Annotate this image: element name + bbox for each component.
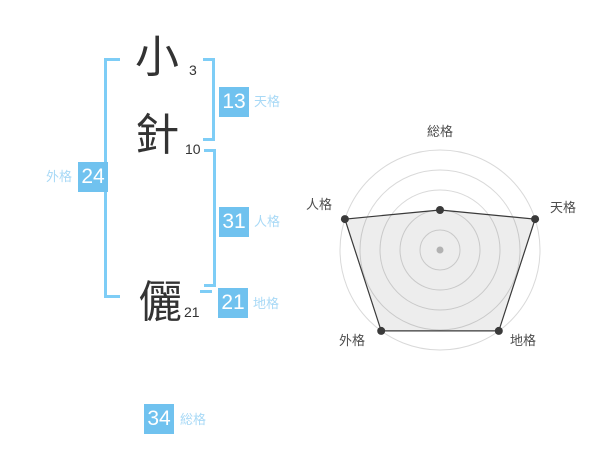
- stroke-count-3: 21: [184, 305, 200, 319]
- soukaku-value-box: 34: [144, 404, 174, 434]
- stroke-count-1: 3: [189, 63, 197, 77]
- radar-chart: 総格天格地格外格人格: [300, 115, 590, 365]
- gaikaku-label: 外格: [30, 170, 72, 183]
- radar-point-4: [377, 327, 385, 335]
- radar-axis-label-5: 人格: [306, 197, 332, 212]
- name-character-2: 針: [134, 114, 180, 158]
- radar-point-3: [495, 327, 503, 335]
- chikaku-label: 地格: [253, 297, 279, 310]
- tenkaku-value-box: 13: [219, 87, 249, 117]
- radar-axis-label-4: 外格: [339, 333, 365, 348]
- gaikaku-value-box: 24: [78, 162, 108, 192]
- name-character-1: 小: [134, 36, 180, 80]
- radar-point-1: [436, 206, 444, 214]
- radar-point-5: [341, 215, 349, 223]
- radar-polygon: [345, 210, 535, 331]
- tenkaku-label: 天格: [254, 95, 280, 108]
- chikaku-tick: [200, 290, 212, 293]
- jinkaku-bracket: [204, 149, 216, 287]
- radar-axis-label-3: 地格: [510, 333, 536, 348]
- chikaku-value-box: 21: [218, 288, 248, 318]
- soukaku-label: 総格: [180, 413, 206, 426]
- radar-point-2: [531, 215, 539, 223]
- seimei-handan-panel: 小 3 針 10 儷 21 13 天格 31 人格 21 地格 24 外格 34…: [0, 0, 600, 470]
- name-character-3: 儷: [137, 281, 183, 325]
- jinkaku-value-box: 31: [219, 207, 249, 237]
- tenkaku-bracket: [203, 58, 215, 141]
- radar-axis-label-1: 総格: [427, 124, 453, 139]
- jinkaku-label: 人格: [254, 215, 280, 228]
- stroke-count-2: 10: [185, 142, 201, 156]
- radar-axis-label-2: 天格: [550, 200, 576, 215]
